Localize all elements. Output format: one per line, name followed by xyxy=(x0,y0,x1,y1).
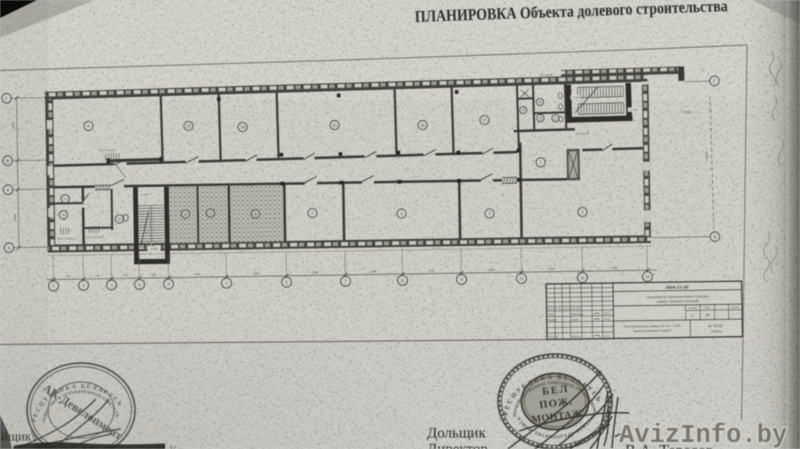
svg-text:6000: 6000 xyxy=(548,267,555,271)
svg-text:Дольщик: Дольщик xyxy=(427,426,486,442)
svg-text:5980: 5980 xyxy=(611,266,618,270)
svg-text:Чеботарев: Чеботарев xyxy=(571,313,584,316)
svg-text:11: 11 xyxy=(580,275,584,280)
svg-text:В: В xyxy=(6,158,9,163)
svg-text:6000: 6000 xyxy=(11,122,15,129)
svg-text:Разраб.: Разраб. xyxy=(548,319,557,322)
svg-text:зданий с крановой эстакадой: зданий с крановой эстакадой xyxy=(657,299,699,304)
svg-text:г.Минск: г.Минск xyxy=(711,329,722,333)
svg-text:Н.контр.: Н.контр. xyxy=(548,336,559,339)
svg-text:Дубина: Дубина xyxy=(571,335,581,338)
svg-text:11: 11 xyxy=(63,197,67,201)
svg-text:1: 1 xyxy=(540,160,542,165)
svg-text:21: 21 xyxy=(554,116,558,120)
svg-text:Стадия: Стадия xyxy=(689,307,698,310)
svg-text:970: 970 xyxy=(66,274,71,278)
svg-text:9: 9 xyxy=(460,277,462,282)
svg-text:производственного корпуса: производственного корпуса xyxy=(633,328,671,333)
svg-text:740: 740 xyxy=(95,274,100,278)
svg-text:Засыпь Ж: Засыпь Ж xyxy=(540,73,553,77)
svg-text:5980: 5980 xyxy=(312,270,319,274)
svg-text:13.12: 13.12 xyxy=(604,312,611,315)
svg-text:20: 20 xyxy=(538,100,542,104)
svg-text:5: 5 xyxy=(311,210,313,215)
svg-text:Изм. Кол. Лист №док Подп.: Изм. Кол. Лист №док Подп. Дата xyxy=(548,307,583,311)
svg-text:20: 20 xyxy=(705,312,709,317)
svg-text:13.12: 13.12 xyxy=(604,318,611,321)
svg-text:14.12: 14.12 xyxy=(604,335,611,338)
svg-text:+7,740: +7,740 xyxy=(630,109,639,112)
svg-text:9: 9 xyxy=(184,212,186,216)
svg-text:ГИП: ГИП xyxy=(548,313,554,316)
svg-text:12: 12 xyxy=(118,217,122,221)
svg-text:Агеев: Агеев xyxy=(571,318,579,321)
svg-text:6000: 6000 xyxy=(253,271,260,275)
svg-text:Директор: Директор xyxy=(427,442,488,449)
svg-text:470: 470 xyxy=(151,273,156,277)
svg-text:5980: 5980 xyxy=(370,269,377,273)
svg-text:Засыпь Ж: Засыпь Ж xyxy=(576,131,589,135)
svg-text:1 этаж: 1 этаж xyxy=(680,109,691,114)
svg-text:Лист: Лист xyxy=(705,306,711,309)
svg-text:5970: 5970 xyxy=(428,269,435,273)
svg-text:18000: 18000 xyxy=(705,151,709,160)
svg-text:М "БЕЛС": М "БЕЛС" xyxy=(708,324,725,328)
svg-text:Завеса тепловая: Завеса тепловая xyxy=(58,237,77,240)
svg-text:6000: 6000 xyxy=(13,214,17,221)
svg-text:Завеса тепловая: Завеса тепловая xyxy=(98,149,117,153)
svg-text:19: 19 xyxy=(521,108,525,112)
svg-text:2: 2 xyxy=(581,210,583,215)
svg-text:10: 10 xyxy=(62,213,66,217)
svg-text:18: 18 xyxy=(539,116,543,120)
svg-text:6000: 6000 xyxy=(488,268,495,272)
svg-text:Завеса тепловая: Завеса тепловая xyxy=(86,236,105,239)
svg-text:5980: 5980 xyxy=(194,272,201,276)
svg-text:С: С xyxy=(691,312,694,317)
svg-text:7: 7 xyxy=(209,211,211,215)
svg-text:3: 3 xyxy=(488,211,490,216)
svg-text:10: 10 xyxy=(519,276,523,281)
svg-text:780: 780 xyxy=(123,273,128,277)
svg-text:12: 12 xyxy=(645,274,649,279)
svg-text:6: 6 xyxy=(254,212,256,216)
svg-text:Листов: Листов xyxy=(731,306,740,309)
svg-text:+7,200: +7,200 xyxy=(571,96,580,99)
svg-text:AvizInfo.by: AvizInfo.by xyxy=(619,421,787,449)
svg-text:466/6-13-АР: 466/6-13-АР xyxy=(666,284,690,289)
